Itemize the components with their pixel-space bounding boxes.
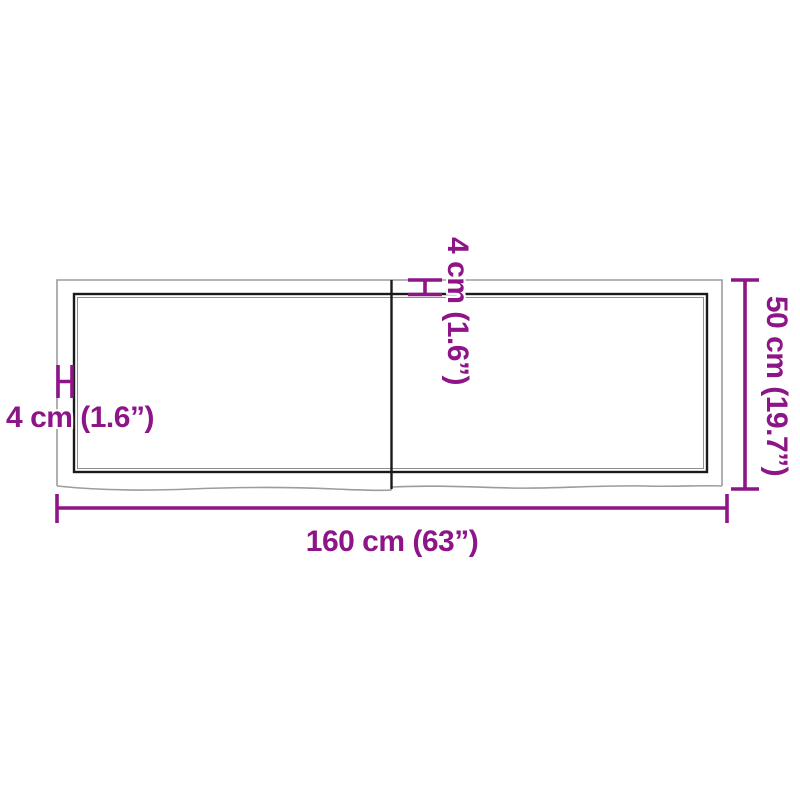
- board-outer-outline: [57, 280, 722, 486]
- width-dimension-label: 160 cm (63”): [306, 525, 478, 559]
- thickness-marker-top-icon: [408, 279, 442, 297]
- depth-dimension-label: 50 cm (19.7”): [759, 296, 793, 476]
- board-live-edge-bottom: [57, 486, 722, 491]
- width-dimension-line: [57, 494, 727, 523]
- thickness-left-dimension-label: 4 cm (1.6”): [6, 401, 154, 435]
- dimension-diagram: 160 cm (63”) 50 cm (19.7”) 4 cm (1.6”) 4…: [0, 0, 800, 800]
- depth-dimension-line: [731, 280, 759, 489]
- diagram-line-art: [0, 0, 800, 800]
- thickness-top-dimension-label: 4 cm (1.6”): [440, 237, 474, 385]
- thickness-marker-left-icon: [57, 365, 74, 398]
